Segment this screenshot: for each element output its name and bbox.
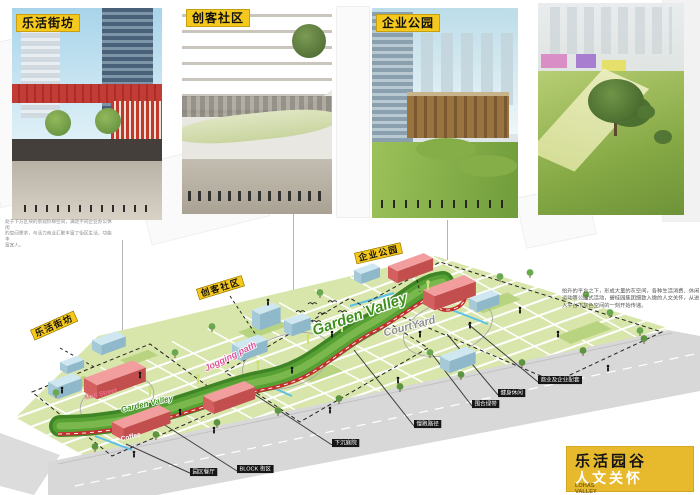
tree-icon [95,108,121,134]
photo-roof-meadow [538,3,684,215]
person-figure [179,411,181,415]
callout-sunken-courtyard: 下沉庭院 [332,439,359,447]
tree-icon [458,371,465,378]
person-figure [419,333,421,337]
tree-icon [588,79,644,123]
photo-skyline [550,7,673,54]
photo-lohas-street: 乐活街坊 [12,8,162,220]
person-figure [61,387,64,390]
tree-icon [45,110,71,136]
person-figure [267,299,270,302]
person-figure [61,389,63,393]
ribbon-tree [196,374,200,378]
person-figure [519,309,521,313]
person-figure [397,377,400,380]
person-figure [133,451,136,454]
tree-icon [641,335,648,342]
description-line: 入平台下灰色空间的一刻开始传递。 [562,302,700,309]
ribbon-tree [256,360,260,364]
photo-skyline [401,33,518,104]
photo-storefront [12,139,162,160]
ribbon-tree [306,334,310,338]
background-massing [336,6,370,218]
person-figure [557,331,560,334]
tree-icon [527,269,534,276]
photo-tag-maker-community: 创客社区 [186,9,250,27]
title-english-line: VALLEY [575,489,597,495]
photo-plaza [182,159,332,214]
callout-park-restaurant: 园区餐厅 [190,468,217,476]
person-figure [397,379,399,383]
tree-icon [153,431,160,438]
presentation-board: 乐活街坊 创客社区 企业公园 [0,0,700,495]
photo-lawn-mound [457,155,517,177]
person-figure [469,324,471,328]
callout-fitness-leisure: 健身休闲 [498,389,525,397]
tree-icon [519,359,526,366]
tree-icon [214,419,221,426]
callout-block-district: BLOCK 街区 [237,465,274,473]
person-figure [139,374,141,378]
description-line: 抬升的平台之下，形成大量的灰空间，各种生活消费、休闲 [562,287,700,294]
description-paragraph: 抬升的平台之下，形成大量的灰空间，各种生活消费、休闲 运动等公园式活动，碧桂园集… [562,287,700,309]
tree-trunk [614,122,617,136]
tree-icon [209,323,216,330]
photo-people [188,191,326,201]
photo-people [24,205,150,212]
person-figure [139,372,142,375]
tree-icon [292,24,326,58]
photo-people [381,200,509,208]
tree-icon [336,395,343,402]
photo-tag-enterprise-park: 企业公园 [376,14,440,32]
tree-icon [607,309,614,316]
tree-icon [317,289,324,296]
person-figure [213,427,216,430]
person-figure [419,331,422,334]
title-block: 乐活园谷 人文关怀 LOHAS VALLEY [566,446,694,492]
person-figure [607,367,609,371]
ribbon-tree [426,280,430,284]
person-figure [607,365,610,368]
tree-icon [53,389,60,396]
photo-tag-lohas-street: 乐活街坊 [16,14,80,32]
person-figure [469,322,472,325]
person-figure [329,407,332,410]
tree-icon [427,349,434,356]
callout-commercial-support: 商业及企业配套 [538,376,582,384]
tree-icon [172,349,179,356]
person-figure [331,333,333,337]
photo-enterprise-park: 企业公园 [372,8,518,218]
caption-line: 处于下方区块的景观阶梯空间，满足不同企业办公休闲 [5,219,115,231]
person-figure [267,301,269,305]
title-english: LOHAS VALLEY [575,483,597,494]
tree-icon [92,443,99,450]
person-figure [291,367,294,370]
tree-icon [497,273,504,280]
photo-color-block [576,54,596,68]
person-figure [179,409,182,412]
tree-icon [580,347,587,354]
photo-maker-community: 创客社区 [182,3,332,214]
photo-color-block [541,54,567,68]
ribbon-tree [148,386,152,390]
tree-icon [637,327,644,334]
description-line: 运动等公园式活动，碧桂园集团细致入微的人文关怀，从进 [562,294,700,301]
person-figure [519,307,522,310]
person-figure [213,429,215,433]
tree-icon [637,105,655,119]
tree-icon [397,383,404,390]
person-figure [133,453,135,457]
callout-jogging-route: 慢跑路径 [414,420,441,428]
person-figure [291,369,293,373]
callout-green-belt: 围合绿带 [472,400,499,408]
tree-icon [275,407,282,414]
photo-pavilion [407,96,509,138]
person-figure [557,333,559,337]
person-figure [329,409,331,413]
